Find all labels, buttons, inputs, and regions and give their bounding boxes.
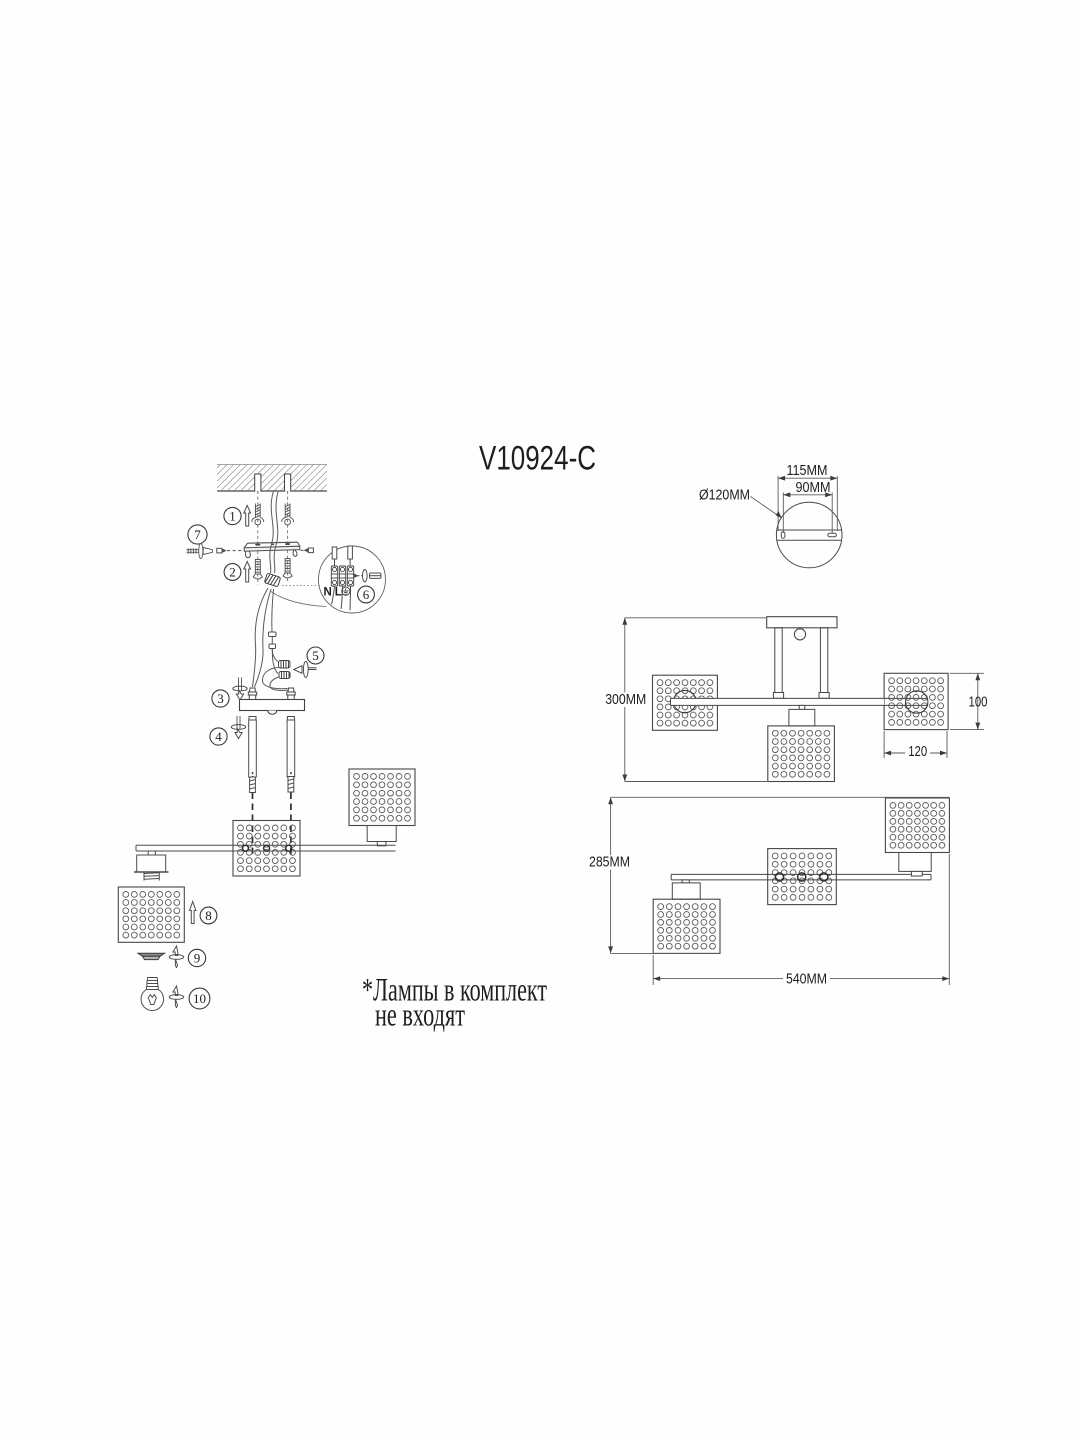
svg-text:285MM: 285MM	[589, 855, 630, 871]
svg-text:9: 9	[194, 950, 201, 965]
svg-text:5: 5	[312, 648, 319, 663]
svg-text:Ø120MM: Ø120MM	[699, 487, 750, 504]
svg-text:300MM: 300MM	[605, 692, 646, 708]
svg-text:V10924-C: V10924-C	[479, 440, 596, 478]
svg-text:10: 10	[193, 991, 206, 1006]
svg-text:115MM: 115MM	[787, 462, 828, 479]
svg-text:1: 1	[229, 508, 236, 523]
svg-text:90MM: 90MM	[796, 479, 831, 496]
svg-text:2: 2	[229, 564, 236, 579]
svg-text:8: 8	[205, 908, 212, 923]
svg-text:не входят: не входят	[375, 998, 465, 1034]
svg-text:7: 7	[194, 527, 201, 542]
svg-text:6: 6	[363, 587, 370, 602]
svg-text:3: 3	[217, 691, 224, 706]
svg-text:100: 100	[969, 695, 988, 711]
svg-text:4: 4	[215, 729, 222, 744]
svg-text:120: 120	[908, 744, 927, 760]
svg-text:540MM: 540MM	[786, 970, 827, 987]
